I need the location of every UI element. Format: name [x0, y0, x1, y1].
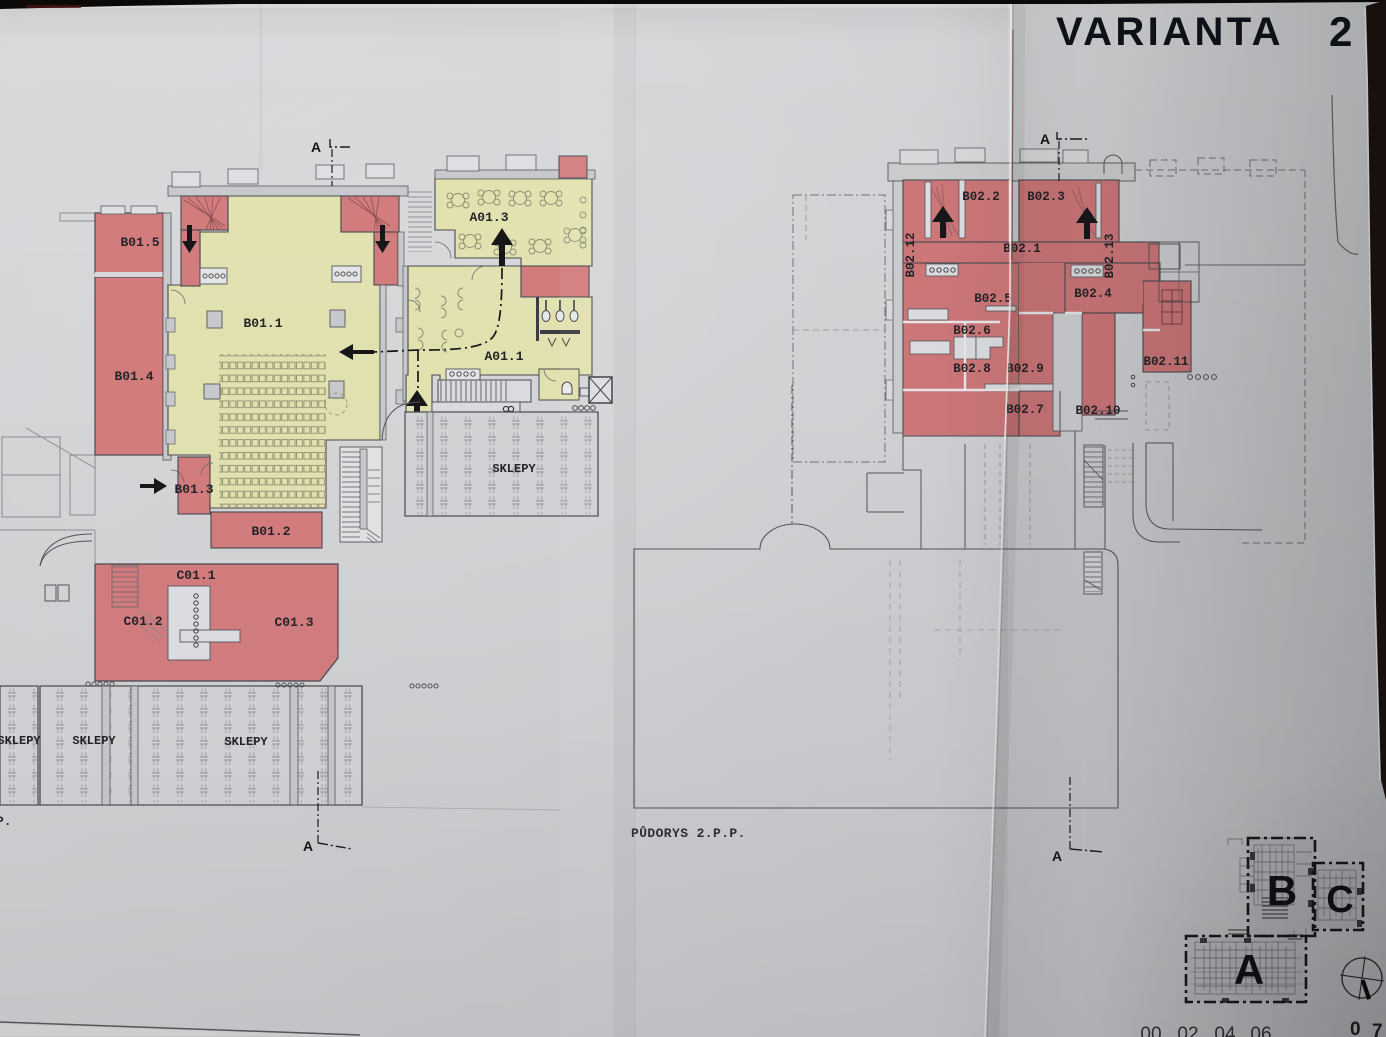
- svg-text:VARIANTA: VARIANTA: [1056, 10, 1284, 54]
- svg-text:2: 2: [1329, 8, 1352, 55]
